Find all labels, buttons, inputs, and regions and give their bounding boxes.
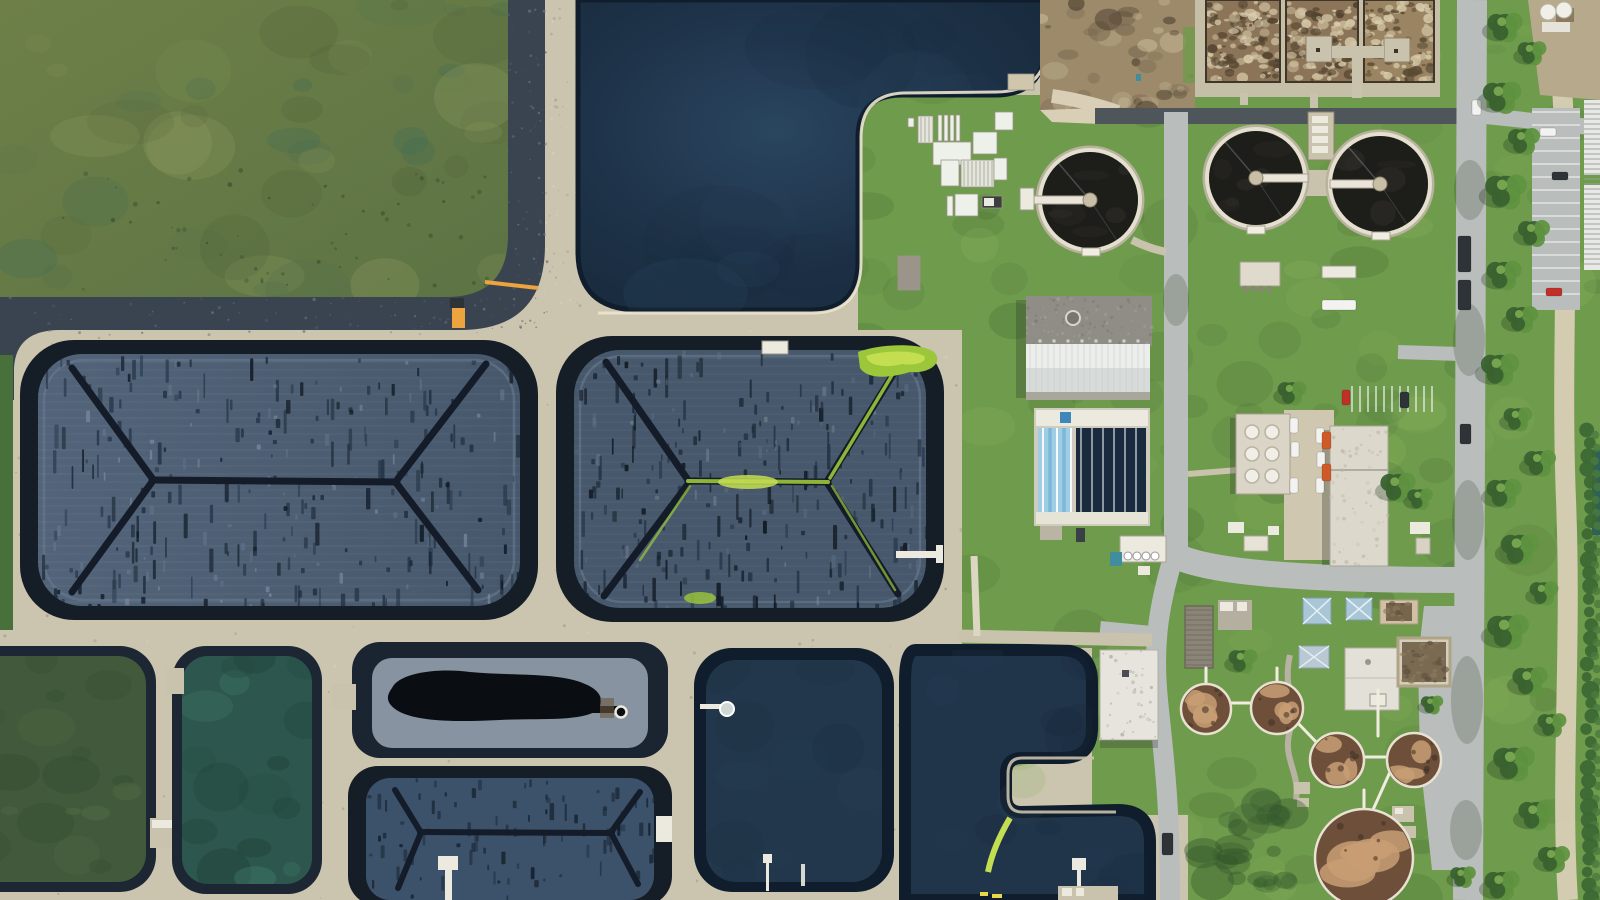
yellow-mark-2 <box>992 894 1002 898</box>
admin-roof <box>1236 414 1290 494</box>
dark-vehicle <box>1458 280 1471 310</box>
walkway-stem <box>1352 58 1362 98</box>
pond-d-pipe <box>445 870 452 900</box>
foot-path <box>974 556 977 636</box>
rim-equipment-box <box>1082 248 1100 256</box>
chem-tank-1 <box>1124 552 1132 560</box>
admin-roof-tank-6 <box>1265 469 1279 483</box>
platform-box-1 <box>1062 888 1072 896</box>
maintenance-shadow <box>1100 740 1158 748</box>
chem-feed-building <box>1240 262 1280 286</box>
inlet-box <box>762 341 788 354</box>
laydown-panel-11 <box>961 160 994 187</box>
drying-bed-east <box>556 336 944 625</box>
digester-pad-box <box>1395 808 1403 814</box>
north-link-road <box>1398 352 1460 354</box>
control-roof-vent <box>1365 659 1371 665</box>
algae-south <box>684 592 716 604</box>
laydown-panel-4 <box>944 115 948 141</box>
center-platform <box>1373 177 1387 191</box>
splitter-eq-2 <box>1312 126 1328 133</box>
gauge-post-2 <box>801 864 805 886</box>
filter-pad <box>1040 526 1062 540</box>
admin-roof-tank-1 <box>1245 425 1259 439</box>
splitter-eq-4 <box>1312 146 1328 153</box>
laydown-panel-7 <box>995 112 1013 130</box>
skimmer-float <box>720 702 734 716</box>
dark-vehicle <box>1460 424 1471 444</box>
gravel-lane <box>958 636 1152 640</box>
laydown-panel-14 <box>955 194 978 216</box>
admin-roof-tank-4 <box>1265 447 1279 461</box>
yard-box-1 <box>1228 522 1244 533</box>
pond-f-outfall <box>1072 858 1086 870</box>
hatch-east <box>1394 49 1398 53</box>
center-platform <box>1083 193 1097 207</box>
pond-b <box>166 644 329 897</box>
gauge-stem-1 <box>766 863 769 891</box>
dark-vehicle <box>1458 236 1471 272</box>
white-pipe <box>896 551 942 558</box>
pond-a-inlet-top <box>152 820 172 828</box>
yard-box-4 <box>1410 522 1430 534</box>
center-platform <box>1249 171 1263 185</box>
admin-building <box>1236 414 1290 494</box>
grass-strip-west <box>0 355 13 630</box>
rim-equipment-box <box>1372 232 1390 240</box>
chem-pad <box>1138 566 1150 575</box>
filter-dark-box <box>1076 528 1085 542</box>
channel-center <box>152 480 397 482</box>
pond-b-inlet <box>166 668 184 694</box>
white-tank-1 <box>1540 4 1556 20</box>
filter-footer <box>1036 512 1148 524</box>
workshop-building <box>1026 296 1154 400</box>
screenshot-root <box>0 0 1600 900</box>
metal-roof-north <box>1026 344 1150 368</box>
algae-center <box>718 475 778 489</box>
hatch-west <box>1316 48 1320 52</box>
splitter-eq-3 <box>1312 136 1328 143</box>
tan-outbuilding <box>1380 600 1418 624</box>
maintenance-hatch <box>1122 670 1129 677</box>
grass-patch <box>1183 27 1197 83</box>
clarifier-east <box>1327 131 1433 240</box>
workshop-shadow <box>1016 300 1026 398</box>
pavilion-1 <box>1303 598 1331 624</box>
teal-equipment <box>1136 74 1141 81</box>
gauge-post-1 <box>763 854 772 863</box>
roof-vent <box>1066 311 1080 325</box>
digester-large <box>1315 809 1414 900</box>
platform-box-2 <box>1076 888 1084 896</box>
east-roof-2 <box>1584 185 1600 270</box>
walkway-stub-1 <box>1240 93 1248 105</box>
digester-2 <box>1251 682 1303 734</box>
clarifier-pump-skid <box>1020 188 1034 210</box>
metal-roof-south <box>1026 368 1150 392</box>
white-tank-2 <box>1556 2 1572 18</box>
laydown-panel-9 <box>973 132 997 154</box>
yard-box-5 <box>1416 538 1430 554</box>
teal-tank <box>1110 552 1122 566</box>
blower-building <box>1185 606 1213 668</box>
yellow-mark-1 <box>980 892 988 896</box>
digester-1 <box>1181 684 1231 734</box>
pond-c-empty-basin <box>332 642 668 758</box>
maintenance-building <box>1099 650 1158 748</box>
admin-roof-tank-3 <box>1245 447 1259 461</box>
walkway-bar <box>1332 46 1384 58</box>
drain-ring <box>616 707 627 718</box>
pond-c-inlet <box>332 684 356 710</box>
laydown-panel-12 <box>994 158 1007 180</box>
pyramid-shed <box>1299 646 1329 668</box>
workshop-apron <box>1026 392 1150 400</box>
asphalt-road <box>1095 108 1458 124</box>
laydown-panel-3 <box>938 115 942 141</box>
algae-lagoon <box>0 0 538 322</box>
tank-skid <box>1542 22 1570 32</box>
pond-d-drying <box>348 766 672 900</box>
drying-bed-west <box>20 340 538 626</box>
digester-3 <box>1310 733 1364 787</box>
white-vehicle <box>1290 478 1298 493</box>
pond-a <box>0 643 174 892</box>
filter-tanks <box>1034 408 1150 542</box>
dark-vehicle <box>1400 392 1409 408</box>
white-vehicle <box>1291 442 1299 457</box>
chem-tank-4 <box>1151 552 1159 560</box>
white-vehicle <box>1290 418 1298 433</box>
laydown-panel-2 <box>918 116 933 143</box>
filter-header <box>1036 410 1148 426</box>
laydown-panel-6 <box>956 115 960 141</box>
red-vehicle <box>1546 288 1562 296</box>
header-blue-box <box>1060 412 1071 423</box>
pavilion-2 <box>1346 598 1372 620</box>
clarifier-bridge <box>1256 174 1308 182</box>
pond-d-pipe-box <box>438 856 458 870</box>
laydown-panel-16 <box>1008 74 1034 90</box>
laydown-panel-15 <box>982 196 1002 208</box>
dark-vehicle <box>1162 833 1173 855</box>
pond-e <box>679 630 894 892</box>
stain <box>600 698 614 718</box>
carport <box>1398 638 1450 686</box>
chem-tank-3 <box>1142 552 1150 560</box>
laydown-panel-10 <box>941 160 959 186</box>
construction-dirt <box>1035 0 1197 122</box>
tank-trailer <box>1322 266 1356 278</box>
aeration-basins <box>1195 0 1440 111</box>
equip-box-2 <box>1237 602 1247 611</box>
orange-vehicle <box>1322 464 1331 481</box>
path-pad-1 <box>1294 782 1310 794</box>
white-vehicle <box>1540 128 1556 136</box>
red-vehicle <box>1342 390 1350 405</box>
vehicle-on-berm <box>450 298 464 308</box>
laydown-panel-1 <box>908 118 914 127</box>
aerial-photograph <box>0 0 1600 900</box>
equip-box-1 <box>1220 602 1233 611</box>
clarifier-bridge <box>1034 196 1090 204</box>
admin-roof-tank-5 <box>1245 469 1259 483</box>
laydown-panel-17 <box>898 256 920 290</box>
splitter-eq-1 <box>1312 116 1328 123</box>
chem-tank-2 <box>1133 552 1141 560</box>
laydown-panel-5 <box>950 115 954 141</box>
orange-vehicle <box>1322 432 1331 449</box>
rim-equipment-box <box>1247 226 1265 234</box>
admin-roof-tank-2 <box>1265 425 1279 439</box>
laydown-panel-13 <box>947 196 953 216</box>
orange-equipment <box>452 308 465 328</box>
white-pipe-head <box>936 545 943 563</box>
yard-box-2 <box>1244 536 1268 551</box>
east-buildings <box>1584 100 1600 270</box>
perimeter-road <box>1468 0 1472 900</box>
dark-vehicle <box>1552 172 1568 180</box>
pond-d-box <box>656 816 672 842</box>
yard-box-3 <box>1268 526 1279 535</box>
white-vehicle <box>1322 300 1356 310</box>
